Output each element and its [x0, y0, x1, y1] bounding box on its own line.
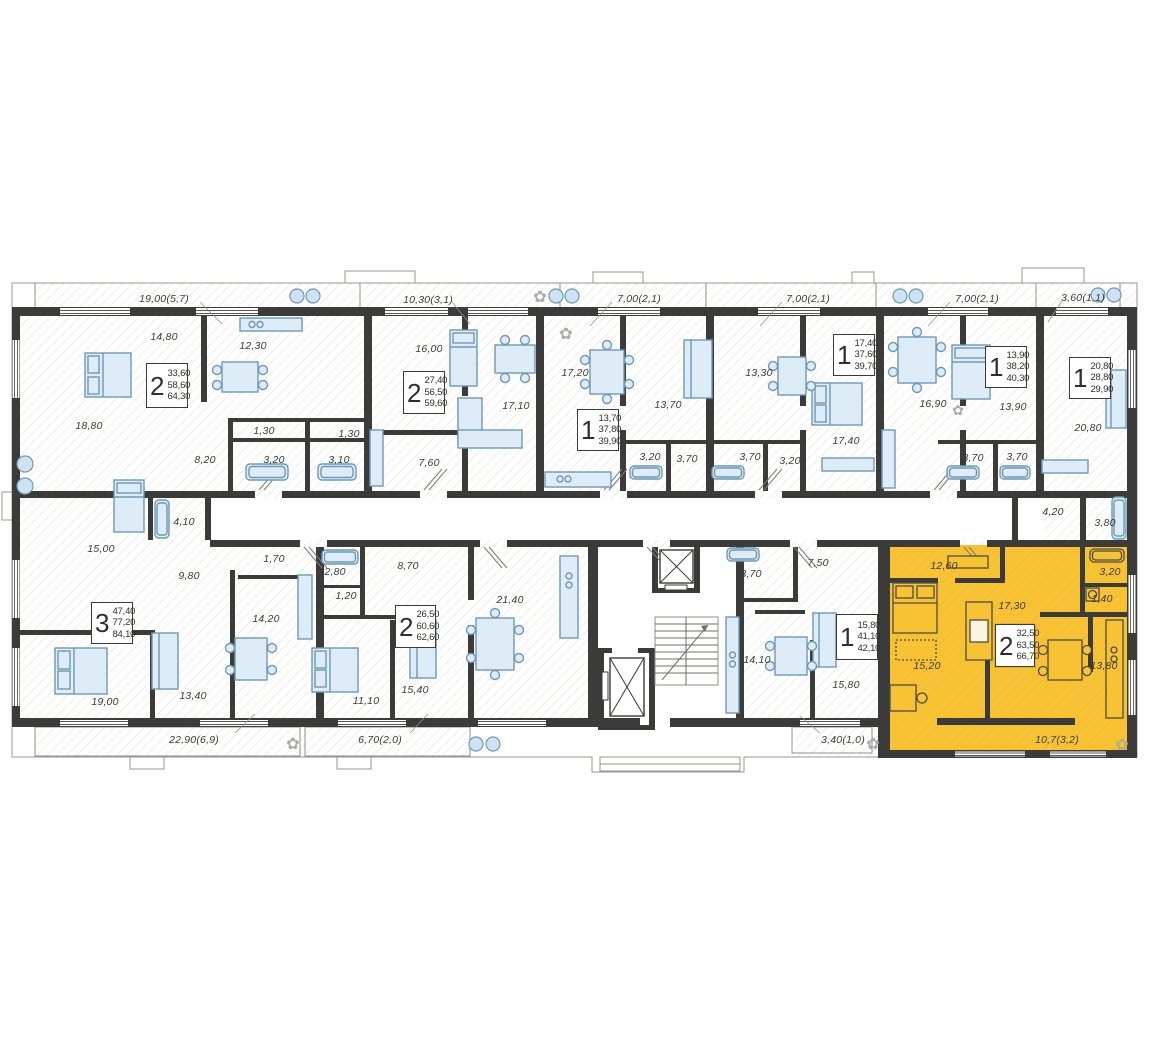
- unit-rooms-count: 1: [1073, 365, 1087, 391]
- unit-rooms-count: 2: [399, 614, 413, 640]
- unit-area-value: 42,10: [857, 643, 880, 654]
- unit-area-value: 26,50: [416, 609, 439, 620]
- unit-rooms-count: 1: [989, 354, 1003, 380]
- room-area-label: 7,00(2,1): [786, 293, 830, 305]
- unit-rooms-count: 2: [150, 373, 164, 399]
- room-area-label: 7,60: [418, 457, 439, 469]
- unit-area-value: 39,70: [854, 361, 877, 372]
- room-area-label: 12,30: [239, 340, 266, 352]
- room-area-label: 1,40: [1091, 593, 1112, 605]
- unit-area-value: 64,30: [167, 391, 190, 402]
- room-area-label: 11,10: [353, 695, 380, 707]
- unit-areas: 32,5063,5066,70: [1016, 628, 1039, 662]
- room-area-label: 2,80: [324, 566, 345, 578]
- room-area-label: 15,40: [401, 684, 428, 696]
- room-area-label: 15,20: [913, 660, 940, 672]
- unit-area-value: 62,60: [416, 632, 439, 643]
- unit-area-value: 28,80: [1090, 372, 1113, 383]
- unit-areas: 20,8028,8029,90: [1090, 361, 1113, 395]
- room-area-label: 3,20: [779, 455, 800, 467]
- unit-area-value: 47,40: [112, 606, 135, 617]
- room-area-label: 3,20: [639, 451, 660, 463]
- unit-card[interactable]: 227,4056,5059,60: [403, 371, 445, 414]
- unit-rooms-count: 1: [840, 624, 854, 650]
- unit-rooms-count: 3: [95, 610, 109, 636]
- room-area-label: 13,40: [179, 690, 206, 702]
- unit-area-value: 20,80: [1090, 361, 1113, 372]
- unit-area-value: 13,70: [598, 413, 621, 424]
- room-area-label: 17,40: [832, 435, 859, 447]
- unit-area-value: 77,20: [112, 617, 135, 628]
- room-area-label: 1,20: [335, 590, 356, 602]
- unit-area-value: 84,10: [112, 629, 135, 640]
- unit-area-value: 17,40: [854, 338, 877, 349]
- unit-card[interactable]: 233,6058,6064,30: [146, 363, 188, 408]
- room-area-label: 6,70(2,0): [358, 734, 402, 746]
- room-area-label: 17,20: [561, 367, 588, 379]
- unit-area-value: 37,80: [598, 424, 621, 435]
- unit-rooms-count: 2: [999, 633, 1013, 659]
- room-area-label: 7,50: [807, 557, 828, 569]
- floorplan-page: ✿ ✿ ✿ ✿ ✿ ✿ 19,00(5,7)10,30(3,1)7,00(2,1…: [0, 0, 1150, 1040]
- room-area-label: 14,80: [150, 331, 177, 343]
- unit-areas: 47,4077,2084,10: [112, 606, 135, 640]
- unit-area-value: 60,60: [416, 621, 439, 632]
- room-area-label: 10,7(3,2): [1035, 734, 1079, 746]
- room-area-label: 1,70: [263, 553, 284, 565]
- room-area-label: 3,60(1,1): [1061, 292, 1105, 304]
- room-area-label: 3,10: [328, 454, 349, 466]
- room-area-label: 1,30: [338, 428, 359, 440]
- room-area-label: 22,90(6,9): [169, 734, 219, 746]
- room-area-label: 3,70: [740, 568, 761, 580]
- unit-area-value: 37,60: [854, 349, 877, 360]
- unit-card[interactable]: 113,7037,8039,90: [577, 409, 619, 451]
- unit-area-value: 63,50: [1016, 640, 1039, 651]
- unit-card[interactable]: 113,9038,2040,30: [985, 346, 1027, 388]
- unit-areas: 27,4056,5059,60: [424, 375, 447, 409]
- room-area-label: 3,70: [739, 451, 760, 463]
- room-area-label: 14,10: [743, 654, 770, 666]
- room-area-label: 3,70: [1006, 451, 1027, 463]
- unit-areas: 33,6058,6064,30: [167, 368, 190, 402]
- unit-card[interactable]: 347,4077,2084,10: [91, 602, 133, 644]
- room-area-label: 17,10: [502, 400, 529, 412]
- unit-area-value: 33,60: [167, 368, 190, 379]
- unit-area-value: 38,20: [1006, 361, 1029, 372]
- room-area-label: 18,80: [75, 420, 102, 432]
- room-area-label: 8,20: [194, 454, 215, 466]
- room-area-label: 13,80: [1090, 660, 1117, 672]
- room-area-label: 16,00: [415, 343, 442, 355]
- room-area-label: 13,90: [999, 401, 1026, 413]
- unit-area-value: 41,10: [857, 631, 880, 642]
- unit-area-value: 56,50: [424, 387, 447, 398]
- room-area-label: 3,20: [263, 454, 284, 466]
- room-area-label: 3,40(1,0): [821, 734, 865, 746]
- room-area-label: 7,00(2,1): [955, 293, 999, 305]
- unit-card[interactable]: 115,8041,1042,10: [836, 614, 878, 660]
- unit-areas: 13,9038,2040,30: [1006, 350, 1029, 384]
- room-area-label: 13,30: [745, 367, 772, 379]
- room-area-label: 3,20: [1099, 566, 1120, 578]
- unit-areas: 15,8041,1042,10: [857, 620, 880, 654]
- room-area-label: 16,90: [919, 398, 946, 410]
- unit-card-selected[interactable]: 232,5063,5066,70: [995, 624, 1035, 667]
- room-area-label: 9,80: [178, 570, 199, 582]
- room-area-label: 4,10: [173, 516, 194, 528]
- room-area-label: 15,00: [87, 543, 114, 555]
- room-area-label: 1,30: [253, 425, 274, 437]
- unit-rooms-count: 1: [837, 342, 851, 368]
- unit-card[interactable]: 226,5060,6062,60: [395, 605, 436, 648]
- unit-areas: 13,7037,8039,90: [598, 413, 621, 447]
- room-area-label: 3,70: [676, 453, 697, 465]
- room-area-label: 15,80: [832, 679, 859, 691]
- unit-area-value: 27,40: [424, 375, 447, 386]
- unit-card[interactable]: 117,4037,6039,70: [833, 334, 875, 376]
- room-area-label: 19,00(5,7): [139, 293, 189, 305]
- room-area-label: 14,20: [252, 613, 279, 625]
- unit-rooms-count: 2: [407, 380, 421, 406]
- room-area-label: 8,70: [397, 560, 418, 572]
- unit-area-value: 15,80: [857, 620, 880, 631]
- room-area-label: 12,60: [930, 560, 957, 572]
- room-area-label: 10,30(3,1): [403, 294, 453, 306]
- unit-area-value: 58,60: [167, 380, 190, 391]
- unit-card[interactable]: 120,8028,8029,90: [1069, 357, 1111, 399]
- room-area-label: 20,80: [1074, 422, 1101, 434]
- unit-area-value: 13,90: [1006, 350, 1029, 361]
- room-area-label: 13,70: [654, 399, 681, 411]
- unit-rooms-count: 1: [581, 417, 595, 443]
- room-area-label: 3,70: [962, 452, 983, 464]
- labels-layer: 19,00(5,7)10,30(3,1)7,00(2,1)7,00(2,1)7,…: [0, 0, 1150, 1040]
- unit-area-value: 32,50: [1016, 628, 1039, 639]
- unit-areas: 17,4037,6039,70: [854, 338, 877, 372]
- unit-areas: 26,5060,6062,60: [416, 609, 439, 643]
- unit-area-value: 40,30: [1006, 373, 1029, 384]
- room-area-label: 7,00(2,1): [617, 293, 661, 305]
- room-area-label: 19,00: [91, 696, 118, 708]
- room-area-label: 21,40: [496, 594, 523, 606]
- unit-area-value: 29,90: [1090, 384, 1113, 395]
- unit-area-value: 66,70: [1016, 651, 1039, 662]
- unit-area-value: 39,90: [598, 436, 621, 447]
- room-area-label: 3,80: [1094, 517, 1115, 529]
- room-area-label: 4,20: [1042, 506, 1063, 518]
- room-area-label: 17,30: [998, 600, 1025, 612]
- unit-area-value: 59,60: [424, 398, 447, 409]
